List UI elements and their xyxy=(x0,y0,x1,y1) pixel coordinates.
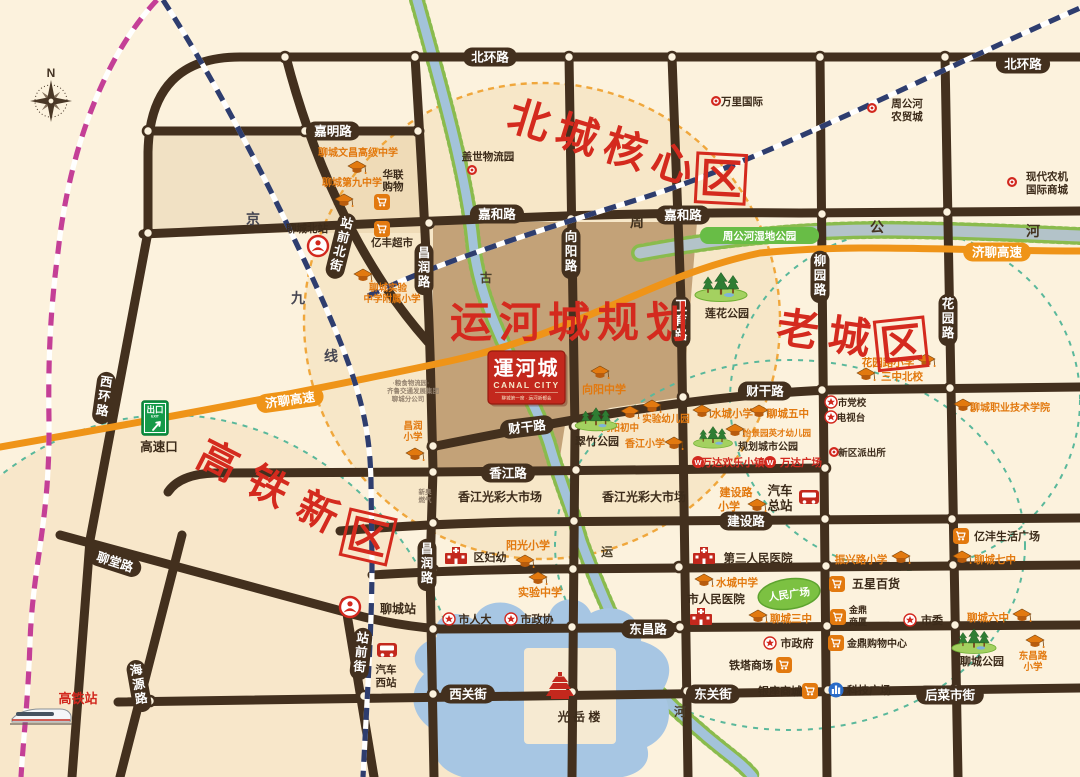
poi-label: 聊城五中 xyxy=(767,407,809,420)
school-cap-base xyxy=(753,506,762,511)
shopping-cart-icon xyxy=(374,221,390,237)
road-intersection-node xyxy=(428,441,438,451)
guangyue-tower-icon xyxy=(546,690,574,696)
cart-wheel xyxy=(834,586,836,588)
hospital-window xyxy=(462,556,465,559)
poi-cart-icon-group xyxy=(374,194,390,210)
district-boxed-char: 区 xyxy=(340,509,396,565)
road-intersection-node xyxy=(428,518,438,528)
poi-label: 水城中学 xyxy=(715,576,758,589)
road-label-pill: 昌润路 xyxy=(418,539,437,592)
canal-city-location-map: 周公河湿地公园人民广场北环路北环路嘉明路嘉和路嘉和路向阳路昌润路昌润路卫育路柳园… xyxy=(0,0,1080,777)
poi-rail-icon-group xyxy=(340,597,360,617)
waterway-rail-char: 公 xyxy=(870,219,884,235)
road-intersection-node xyxy=(143,126,153,136)
hospital-cross-h xyxy=(701,550,707,552)
road-intersection-node xyxy=(410,52,420,62)
road-intersection-node xyxy=(143,228,153,238)
road-label-pill: 花园路 xyxy=(939,294,958,347)
road-label-pill: 向阳路 xyxy=(562,227,581,280)
road-intersection-node xyxy=(568,564,578,574)
school-cap-tassel-dot xyxy=(608,377,610,379)
school-cap-tassel-dot xyxy=(533,566,535,568)
district-char: 城 xyxy=(825,311,873,363)
school-cap-base xyxy=(1031,642,1040,647)
shopping-cart-icon xyxy=(828,635,844,651)
poi-label: 农贸城 xyxy=(890,110,923,123)
road-name: 北环路 xyxy=(471,49,509,64)
road-name: 润 xyxy=(418,259,431,274)
school-cap-tassel-dot xyxy=(365,172,367,174)
bus-wheel xyxy=(803,500,807,504)
poi-label: 聊城七中 xyxy=(974,553,1016,566)
poi-label: 新区派出所 xyxy=(838,447,886,459)
poi-label: 光 岳 楼 xyxy=(557,709,601,724)
road-name: 东昌路 xyxy=(629,621,667,636)
poi-star-icon-group xyxy=(443,613,455,625)
park-pond xyxy=(724,293,734,297)
poi-label: 西站 xyxy=(376,676,397,689)
school-cap-tassel-dot xyxy=(909,562,911,564)
poi-label: 高速口 xyxy=(140,439,178,454)
road-intersection-node xyxy=(571,465,581,475)
shopping-cart-icon xyxy=(830,609,846,625)
road-intersection-node xyxy=(424,218,434,228)
poi-label: 聊城站 xyxy=(380,601,416,616)
hospital-window xyxy=(710,556,713,559)
poi-label: 金鼎 xyxy=(848,604,867,615)
road-intersection-node xyxy=(821,561,831,571)
poi-label: 聊城六中 xyxy=(967,611,1009,624)
railway-station-icon xyxy=(308,236,328,256)
waterway-rail-char: 九 xyxy=(290,290,305,306)
poi-tech-icon-group xyxy=(829,683,844,698)
poi-label: 市政府 xyxy=(781,636,814,650)
road-intersection-node xyxy=(950,620,960,630)
poi-cart: 亿沣生活广场 xyxy=(953,528,1040,544)
poi-label: 市人大 xyxy=(459,612,492,626)
poi-label: 翠竹公园 xyxy=(575,434,619,448)
road-name: 路 xyxy=(814,282,827,297)
poi-wanda: W万达广场 xyxy=(764,456,822,469)
poi-label: 聊城实验 xyxy=(369,282,408,294)
school-cap-tassel-dot xyxy=(371,280,373,282)
road-name: 园 xyxy=(814,268,827,282)
poi-tech: 科技广场 xyxy=(829,683,892,698)
school-cap-tassel-dot xyxy=(1043,646,1045,648)
poi-label: 科技广场 xyxy=(847,683,891,697)
poi-school: 香江小学 xyxy=(625,437,684,450)
park-pond xyxy=(715,442,723,445)
poi-label: 周公河 xyxy=(891,98,923,110)
cart-wheel xyxy=(379,231,381,233)
poi-label: 盖世物流园 xyxy=(462,150,515,163)
road-name: 环 xyxy=(97,389,112,405)
road-intersection-node xyxy=(675,622,685,632)
road-name: 路 xyxy=(942,325,955,340)
hospital-window xyxy=(448,556,451,559)
poi-star: 市政府 xyxy=(764,636,814,650)
bus-windshield xyxy=(802,493,816,498)
poi-label: 怡景园英才幼儿园 xyxy=(743,428,811,438)
school-cap-base xyxy=(521,562,530,567)
school-cap-tassel-dot xyxy=(638,417,640,419)
poi-star-icon-group xyxy=(764,637,776,649)
school-cap-tassel-dot xyxy=(682,448,684,450)
hospital-cross-h xyxy=(698,611,704,613)
school-cap-tassel-dot xyxy=(423,459,425,461)
poi-label: 小学 xyxy=(402,431,423,443)
bus-windshield xyxy=(380,646,394,651)
poi-label: 华联 xyxy=(383,168,404,181)
road-name: 西 xyxy=(99,374,113,390)
cart-wheel xyxy=(833,645,835,647)
poi-label: 区妇幼 xyxy=(474,550,507,564)
exit-sign-subtext: EXIT xyxy=(151,415,160,419)
school-cap-base xyxy=(897,558,906,563)
road-name: 建设路 xyxy=(727,513,765,528)
district-char: 城 xyxy=(548,299,590,346)
bus-wheel xyxy=(390,653,394,657)
poi-label: 商厦 xyxy=(849,616,868,627)
hospital-window xyxy=(707,617,710,620)
poi-label: 莲花公园 xyxy=(705,306,749,320)
poi-label: 亿沣生活广场 xyxy=(974,529,1040,543)
waterway-rail-char: 河 xyxy=(673,704,686,719)
district-char: 规 xyxy=(597,299,639,346)
road-name: 后菜市街 xyxy=(925,687,976,702)
road-intersection-node xyxy=(280,52,290,62)
school-cap-tassel-dot xyxy=(546,583,548,585)
road-label-pill: 嘉明路 xyxy=(306,122,360,141)
school-cap-base xyxy=(596,373,605,378)
school-cap-base xyxy=(862,375,871,380)
road-name: 站 xyxy=(356,629,370,645)
poi-label: 万达欢乐小镇 xyxy=(701,456,765,469)
poi-label: 电视台 xyxy=(837,412,866,424)
district-char: 河 xyxy=(499,299,541,346)
poi-label: 万里国际 xyxy=(720,96,763,108)
road-label-pill: 嘉和路 xyxy=(470,205,524,224)
road-name: 前 xyxy=(354,644,368,660)
poi-none: 高速口 xyxy=(140,439,178,454)
cart-wheel xyxy=(958,538,960,540)
road-intersection-node xyxy=(428,624,438,634)
hospital-window xyxy=(696,556,699,559)
wetland-park-bar: 周公河湿地公园 xyxy=(700,227,819,244)
road-label-pill: 西关街 xyxy=(441,685,495,704)
poi-cart: 铁塔商场 xyxy=(729,657,792,673)
poi-label: 聊城职业技术学院 xyxy=(970,401,1050,414)
road-label-pill: 香江路 xyxy=(481,464,535,483)
road-intersection-node xyxy=(413,126,423,136)
poi-label: 银座商城 xyxy=(758,684,802,698)
poi-label: 三中北校 xyxy=(881,370,923,383)
poi-label: 振兴路小学 xyxy=(835,553,888,566)
road-intersection-node xyxy=(948,560,958,570)
road-name: 嘉和路 xyxy=(477,206,516,221)
road-label-pill: 昌润路 xyxy=(415,243,434,296)
road-name: 嘉明路 xyxy=(313,123,352,138)
road-intersection-node xyxy=(815,52,825,62)
shopping-cart-icon xyxy=(776,657,792,673)
school-cap-base xyxy=(731,431,740,436)
district-char: 区 xyxy=(699,154,743,203)
poi-label: 小学 xyxy=(717,499,740,513)
cart-wheel xyxy=(839,619,841,621)
poi-star-icon-group xyxy=(825,396,837,408)
road-intersection-node xyxy=(947,514,957,524)
poi-label: 小学 xyxy=(1022,661,1043,673)
school-cap-tassel-dot xyxy=(766,621,768,623)
train-windows xyxy=(16,712,54,716)
guangyue-tower-base xyxy=(551,696,569,699)
poi-dot-icon-group xyxy=(467,165,477,175)
road-name: 嘉和路 xyxy=(663,207,702,222)
road-name: 路 xyxy=(418,274,431,289)
road-name: 阳 xyxy=(565,243,578,258)
cart-wheel xyxy=(781,667,783,669)
poi-label: 市人民医院 xyxy=(687,592,745,606)
poi-cart-icon-group xyxy=(953,528,969,544)
bus-wheel xyxy=(812,500,816,504)
poi-label: 齐鲁交通发展集团 xyxy=(387,386,440,395)
compass-north-label: N xyxy=(47,66,56,80)
road-name: 济聊高速 xyxy=(972,244,1023,259)
school-cap-tassel-dot xyxy=(765,510,767,512)
poi-label: 第三人民医院 xyxy=(724,551,793,565)
poi-cart: 银座商城 xyxy=(758,683,818,699)
school-cap-base xyxy=(698,412,707,417)
road-name: 西关街 xyxy=(449,686,487,701)
school-cap-base xyxy=(648,407,657,412)
school-cap-base xyxy=(353,168,362,173)
poi-label: 香江光彩大市场 xyxy=(601,489,686,504)
waterway-rail-char: 线 xyxy=(324,348,338,364)
road-intersection-node xyxy=(674,562,684,572)
road-name: 昌 xyxy=(421,541,434,556)
logo-tagline: 聊城第一席 · 运河新都会 xyxy=(501,395,551,402)
railway-station-head xyxy=(315,240,320,245)
poi-star: 电视台 xyxy=(825,411,866,424)
tech-bar xyxy=(832,689,834,694)
poi-label: 聊城分公司 xyxy=(392,394,425,403)
road-intersection-node xyxy=(940,52,950,62)
road-label-pill: 后菜市街 xyxy=(916,686,984,705)
cart-wheel xyxy=(785,667,787,669)
road-name: 柳 xyxy=(814,253,827,268)
district-char: 划 xyxy=(646,299,688,346)
road-name: 东关街 xyxy=(694,686,732,701)
poi-bus: 汽车西站 xyxy=(376,643,398,689)
railway-station-head xyxy=(347,601,352,606)
project-logo: 運河城CANAL CITY聊城第一席 · 运河新都会 xyxy=(488,351,568,407)
school-cap-tassel-dot xyxy=(660,411,662,413)
poi-label: 铁塔商场 xyxy=(729,658,773,672)
poi-dot: 新区派出所 xyxy=(829,447,886,459)
district-boxed-char: 区 xyxy=(874,317,928,371)
school-cap-tassel-dot xyxy=(712,585,714,587)
poi-label: 汽车 xyxy=(376,663,397,676)
poi-label: 昌润 xyxy=(403,420,422,432)
poi-cart-icon-group xyxy=(829,576,845,592)
school-cap-tassel-dot xyxy=(874,379,876,381)
road-label-pill: 东昌路 xyxy=(621,620,675,639)
poi-star: 市政协 xyxy=(505,612,554,626)
road-name: 街 xyxy=(352,658,367,674)
road-name: 财干路 xyxy=(745,383,784,398)
district-char: 区 xyxy=(878,318,925,369)
waterway-rail-char: 京 xyxy=(246,211,260,227)
logo-name: 運河城 xyxy=(494,356,560,380)
poi-star: 市党校 xyxy=(825,396,867,409)
road-label-pill: 柳园路 xyxy=(811,251,830,304)
school-cap-base xyxy=(755,412,764,417)
cart-wheel xyxy=(811,693,813,695)
road-intersection-node xyxy=(428,467,438,477)
road-label-pill: 财干路 xyxy=(738,382,792,401)
poi-label: ·粮食物流园· xyxy=(393,378,430,387)
park-pond xyxy=(977,646,986,649)
road-name: 香江路 xyxy=(488,465,527,480)
tech-bar xyxy=(838,688,840,695)
poi-label: 金鼎购物中心 xyxy=(846,637,907,650)
poi-label: 建设路 xyxy=(720,485,754,499)
waterway-rail-char: 周 xyxy=(630,214,644,230)
hospital-door xyxy=(703,559,706,565)
poi-label: 中学附属小学 xyxy=(363,293,421,305)
poi-cart-icon-group xyxy=(802,683,818,699)
poi-label: 水城小学 xyxy=(710,407,753,420)
school-cap-tassel-dot xyxy=(1030,620,1032,622)
poi-label: 购物 xyxy=(383,180,404,193)
school-cap-base xyxy=(959,406,968,411)
poi-none: 新奥燃气 xyxy=(419,487,433,504)
road-name: 昌 xyxy=(418,245,431,260)
road-name: 润 xyxy=(421,555,434,570)
road-intersection-node xyxy=(820,514,830,524)
road-name: 园 xyxy=(942,311,955,325)
poi-cart-icon-group xyxy=(830,609,846,625)
road-label-pill: 建设路 xyxy=(719,512,773,531)
poi-label: 市党校 xyxy=(838,397,867,409)
poi-label: 香江光彩大市场 xyxy=(457,489,542,504)
poi-label: 东昌路 xyxy=(1019,650,1048,662)
poi-dot-icon-group xyxy=(1007,177,1017,187)
hospital-window xyxy=(693,617,696,620)
poi-label: 聊城公园 xyxy=(960,654,1004,668)
road-intersection-node xyxy=(678,392,688,402)
district-char: 运 xyxy=(450,299,492,346)
poi-dot-center xyxy=(1011,181,1014,184)
poi-none: 香江光彩大市场 xyxy=(601,489,686,504)
road-intersection-node xyxy=(564,52,574,62)
road-intersection-node xyxy=(667,52,677,62)
poi-label: 高铁站 xyxy=(58,691,97,706)
road-label-pill: 济聊高速 xyxy=(963,243,1031,262)
poi-none: 香江光彩大市场 xyxy=(457,489,542,504)
district-boxed-char: 区 xyxy=(695,153,746,204)
road-intersection-node xyxy=(817,385,827,395)
wanda-w: W xyxy=(766,458,774,467)
road-name: 北环路 xyxy=(1004,56,1042,71)
road-label-pill: 东关街 xyxy=(686,685,740,704)
cart-wheel xyxy=(383,204,385,206)
poi-label: 五星百货 xyxy=(852,576,900,591)
cart-wheel xyxy=(962,538,964,540)
road-name: 路 xyxy=(421,570,434,585)
hospital-cross-h xyxy=(453,550,459,552)
poi-cart-icon-group xyxy=(828,635,844,651)
poi-label: 国际商城 xyxy=(1026,183,1068,196)
school-cap-base xyxy=(670,444,679,449)
district-label: 运河城规划 xyxy=(450,299,688,346)
poi-cart-icon-group xyxy=(776,657,792,673)
poi-dot-center xyxy=(833,451,836,454)
poi-dot-center xyxy=(715,100,718,103)
school-cap-base xyxy=(340,201,349,206)
logo-subtitle: CANAL CITY xyxy=(493,380,559,390)
poi-label: 聊城北站 xyxy=(286,222,328,235)
shopping-cart-icon xyxy=(802,683,818,699)
exit-sign-text: 出口 xyxy=(146,405,163,415)
cart-wheel xyxy=(807,693,809,695)
district-char: 老 xyxy=(774,303,822,355)
poi-label: 向阳中学 xyxy=(582,382,626,396)
poi-star: 市委 xyxy=(904,613,944,627)
poi-dot-center xyxy=(471,169,474,172)
guangyue-tower-icon xyxy=(558,672,562,676)
shopping-cart-icon xyxy=(953,528,969,544)
school-cap-base xyxy=(359,276,368,281)
poi-exit: 出口EXIT xyxy=(142,401,168,435)
park-pond xyxy=(598,424,606,427)
poi-star-icon-group xyxy=(825,411,837,423)
poi-label: 现代农机 xyxy=(1026,170,1068,183)
poi-dot-icon-group xyxy=(867,103,877,113)
poi-star: 市人大 xyxy=(443,612,492,626)
poi-rail-icon-group xyxy=(308,236,328,256)
poi-label: 市政协 xyxy=(521,612,554,626)
poi-label: 香江小学 xyxy=(625,437,665,450)
railway-station-icon xyxy=(340,597,360,617)
hospital-door xyxy=(455,559,458,565)
road-name: 路 xyxy=(95,402,110,419)
poi-label: 市委 xyxy=(921,613,944,627)
poi-label: 实验中学 xyxy=(518,585,562,599)
hospital-door xyxy=(700,620,703,626)
road-label-pill: 北环路 xyxy=(996,55,1050,74)
poi-cart-icon-group xyxy=(374,221,390,237)
cart-wheel xyxy=(835,619,837,621)
road-intersection-node xyxy=(428,689,438,699)
road-intersection-node xyxy=(817,209,827,219)
school-cap-base xyxy=(700,581,709,586)
road-label-pill: 北环路 xyxy=(463,48,517,67)
school-cap-tassel-dot xyxy=(352,205,354,207)
road-intersection-node xyxy=(567,622,577,632)
school-cap-base xyxy=(958,558,967,563)
cart-wheel xyxy=(379,204,381,206)
poi-label: 聊城文昌高级中学 xyxy=(318,146,398,159)
road-intersection-node xyxy=(569,516,579,526)
cart-wheel xyxy=(383,231,385,233)
poi-label: 燃气 xyxy=(419,495,433,504)
cart-wheel xyxy=(837,645,839,647)
wetland-park-label: 周公河湿地公园 xyxy=(723,230,797,243)
poi-star-icon-group xyxy=(904,614,916,626)
poi-dot-icon-group xyxy=(711,96,721,106)
